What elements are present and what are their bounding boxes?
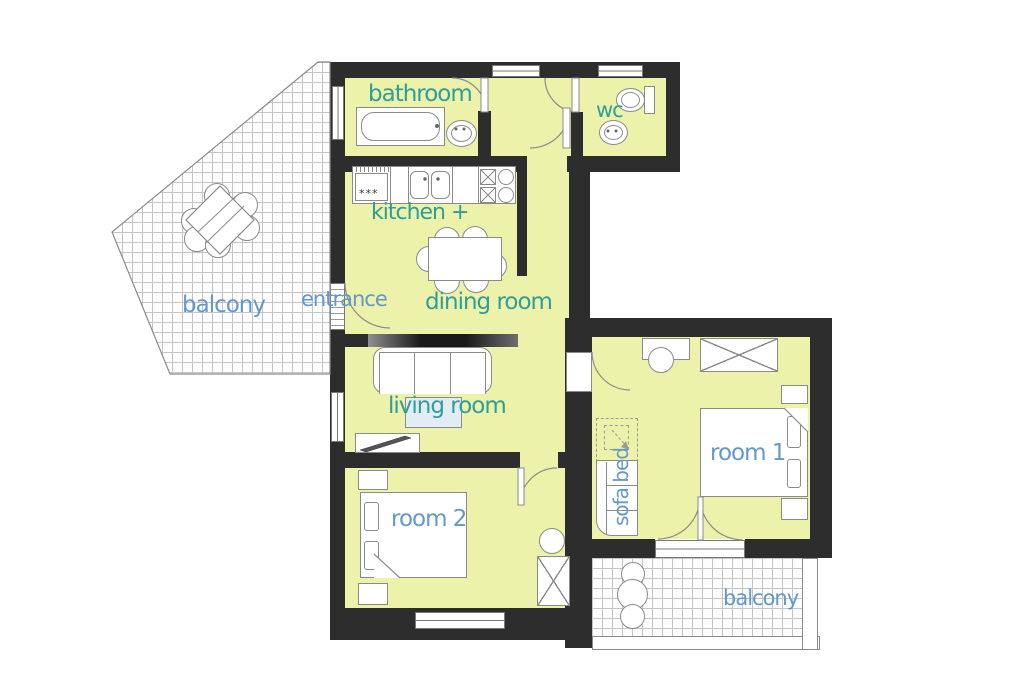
nightstand	[781, 498, 808, 520]
kitchen-label: kitchen +	[371, 202, 468, 224]
balcony-french-door-threshold	[655, 540, 745, 558]
counter-hatch	[352, 166, 390, 172]
stool	[539, 528, 565, 554]
balcony-chair	[620, 604, 645, 629]
nightstand	[358, 583, 388, 605]
balcony-railing-bottom	[592, 636, 820, 650]
wc-window	[598, 65, 643, 77]
wardrobe	[700, 338, 778, 372]
counter-divider	[390, 166, 391, 204]
pillow	[364, 502, 379, 531]
wall	[569, 156, 590, 337]
desk-chair	[648, 347, 674, 373]
sofa-bed-label: sofa bed	[611, 437, 631, 537]
stove-burner	[480, 187, 496, 203]
stove-burner	[480, 169, 496, 185]
wc-label: wc	[596, 100, 623, 121]
wall	[745, 539, 832, 558]
fridge-marking: ***	[359, 187, 379, 200]
counter-divider	[408, 166, 409, 204]
wall	[558, 452, 578, 468]
wall	[565, 318, 832, 337]
room1-door-leaf	[566, 352, 592, 392]
counter-divider	[452, 166, 453, 204]
balcony-railing-right	[802, 558, 818, 650]
hall-kitchen-doorway	[527, 156, 567, 172]
bathroom-window	[332, 86, 344, 140]
entrance-label: entrance	[301, 289, 387, 310]
living-room-label: living room	[388, 395, 506, 418]
hallway-floor	[491, 78, 571, 156]
dining-room-label: dining room	[425, 291, 552, 314]
floor-plan: ***	[0, 0, 1024, 682]
wall	[345, 334, 368, 347]
toilet-bowl	[621, 92, 640, 108]
kitchen-sink-basin	[431, 171, 450, 199]
pillow	[787, 416, 801, 448]
dining-living-passage-floor	[518, 335, 567, 347]
toilet-tank	[644, 86, 655, 114]
balcony-chair	[205, 232, 231, 258]
balcony-bottom-label: balcony	[723, 588, 798, 609]
nightstand	[358, 470, 388, 490]
living-room-divider	[368, 334, 518, 347]
bathtub-basin	[361, 112, 440, 141]
bathroom-label: bathroom	[368, 83, 472, 106]
tv-unit	[355, 433, 420, 453]
kitchen-partition-wall	[517, 166, 527, 276]
bathroom-doorway	[478, 78, 491, 111]
pillow	[364, 541, 379, 570]
room2-label: room 2	[391, 508, 466, 531]
room2-doorway	[520, 452, 558, 468]
pillow	[787, 459, 801, 488]
wc-washbasin-bowl	[604, 125, 623, 140]
hallway-window	[492, 65, 540, 77]
living-room-window	[331, 392, 344, 442]
nightstand	[781, 385, 808, 404]
sofa-bed-line	[606, 462, 607, 534]
room2-window	[415, 612, 505, 629]
room1-label: room 1	[710, 442, 785, 465]
dining-table	[428, 237, 502, 281]
wall	[592, 539, 655, 558]
stove-burner	[498, 187, 514, 203]
washbasin-bowl	[451, 125, 472, 142]
wc-doorway	[571, 78, 583, 112]
wall	[810, 318, 832, 558]
counter-divider	[478, 166, 479, 204]
sofa-seats	[379, 352, 486, 394]
balcony-chair	[234, 215, 260, 241]
balcony-left-label: balcony	[182, 294, 265, 317]
stove-burner	[498, 169, 514, 185]
wall	[330, 452, 520, 468]
wardrobe	[537, 556, 570, 606]
balcony-chair	[204, 183, 230, 209]
kitchen-sink-basin	[410, 171, 429, 199]
balcony-left-terrace	[112, 62, 345, 374]
